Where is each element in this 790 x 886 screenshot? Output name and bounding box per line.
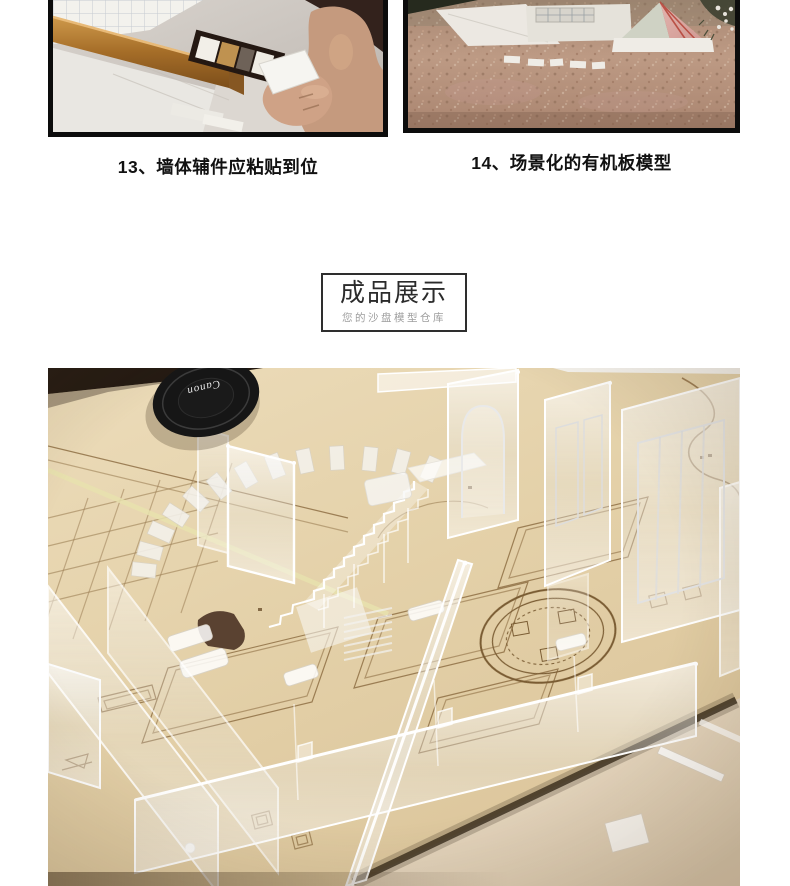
step-photo-13 <box>48 0 388 137</box>
step-14-illustration <box>408 0 735 128</box>
step-caption-14: 14、场景化的有机板模型 <box>403 150 740 175</box>
acrylic-model-illustration: Canon <box>48 368 740 886</box>
step-13-illustration <box>53 0 383 132</box>
step-caption-13: 13、墙体辅件应粘贴到位 <box>48 154 388 179</box>
showcase-subtitle: 您的沙盘模型仓库 <box>342 310 446 325</box>
product-detail-page: 13、墙体辅件应粘贴到位 <box>0 0 790 886</box>
roof-skylight-grid <box>536 8 594 22</box>
step-photo-14 <box>403 0 740 133</box>
showcase-header-box: 成品展示 您的沙盘模型仓库 <box>321 273 467 332</box>
model-base-band <box>612 38 714 52</box>
step-figure-14: 14、场景化的有机板模型 <box>403 0 740 175</box>
finished-model-photo: Canon <box>48 368 740 886</box>
vignette <box>48 368 740 886</box>
step-figure-13: 13、墙体辅件应粘贴到位 <box>48 0 388 179</box>
showcase-title: 成品展示 <box>340 280 448 308</box>
